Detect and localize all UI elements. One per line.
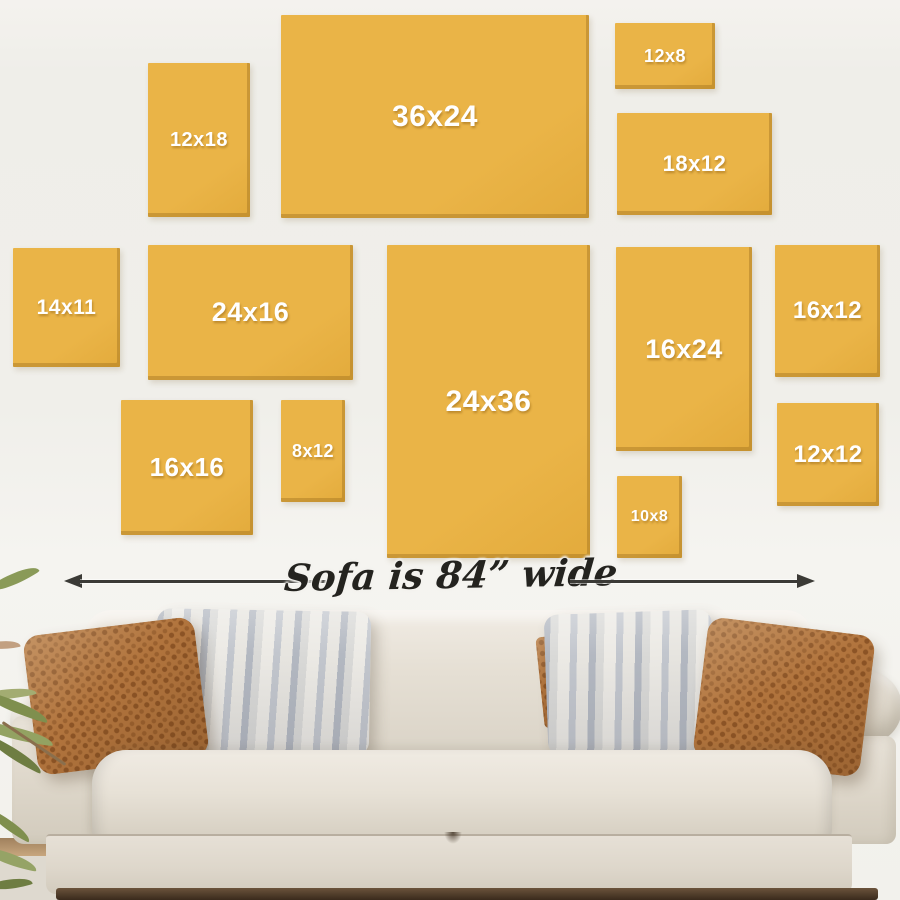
plant-stem [2, 721, 67, 766]
plant-leaf [0, 872, 33, 895]
plant-leaf [0, 809, 34, 842]
plant-leaf [0, 637, 21, 653]
sofa-art-size-guide: 12x1836x2412x818x1214x1124x1624x3616x241… [0, 0, 900, 900]
plant-leaf [0, 559, 40, 598]
plant-leaf [0, 846, 39, 871]
plant-leaves [0, 0, 900, 900]
